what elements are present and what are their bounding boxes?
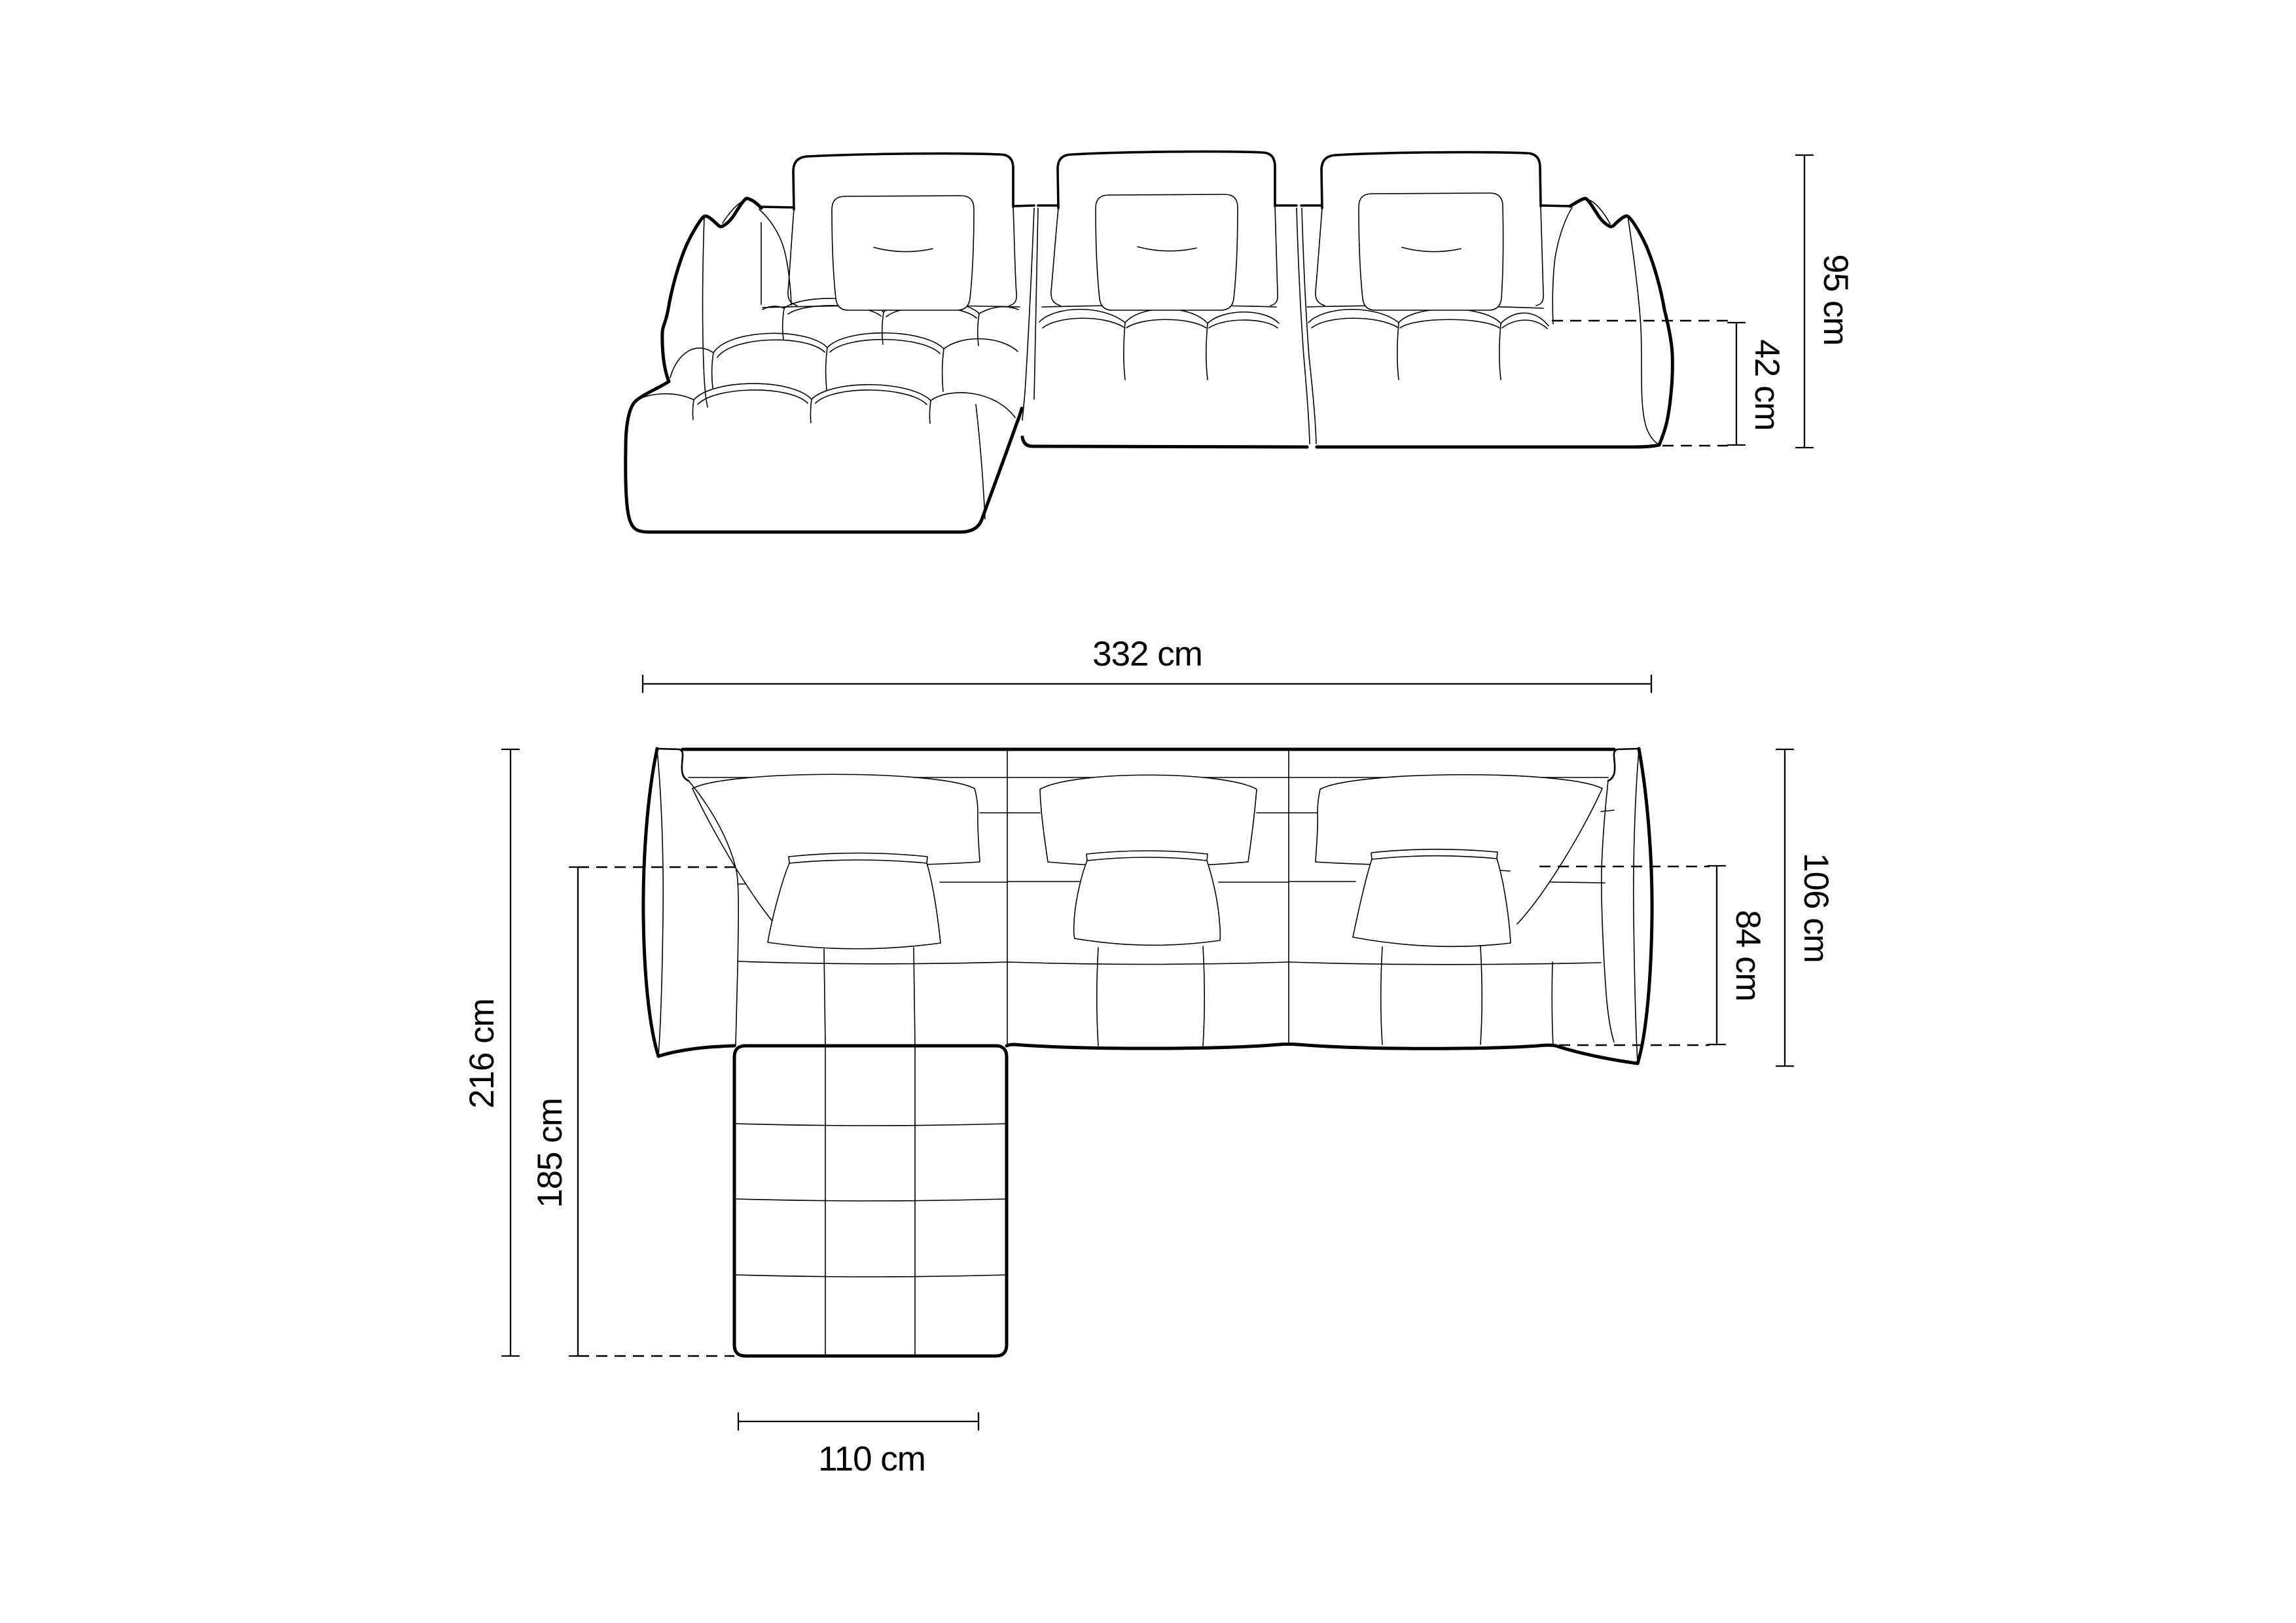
svg-text:185 cm: 185 cm [531, 1098, 569, 1208]
svg-text:95 cm: 95 cm [1816, 254, 1855, 345]
svg-text:110 cm: 110 cm [818, 1440, 925, 1478]
svg-text:42 cm: 42 cm [1748, 339, 1786, 430]
svg-text:332 cm: 332 cm [1092, 635, 1202, 673]
svg-text:216 cm: 216 cm [463, 999, 501, 1109]
svg-text:106 cm: 106 cm [1797, 853, 1835, 963]
svg-text:84 cm: 84 cm [1729, 910, 1767, 1001]
